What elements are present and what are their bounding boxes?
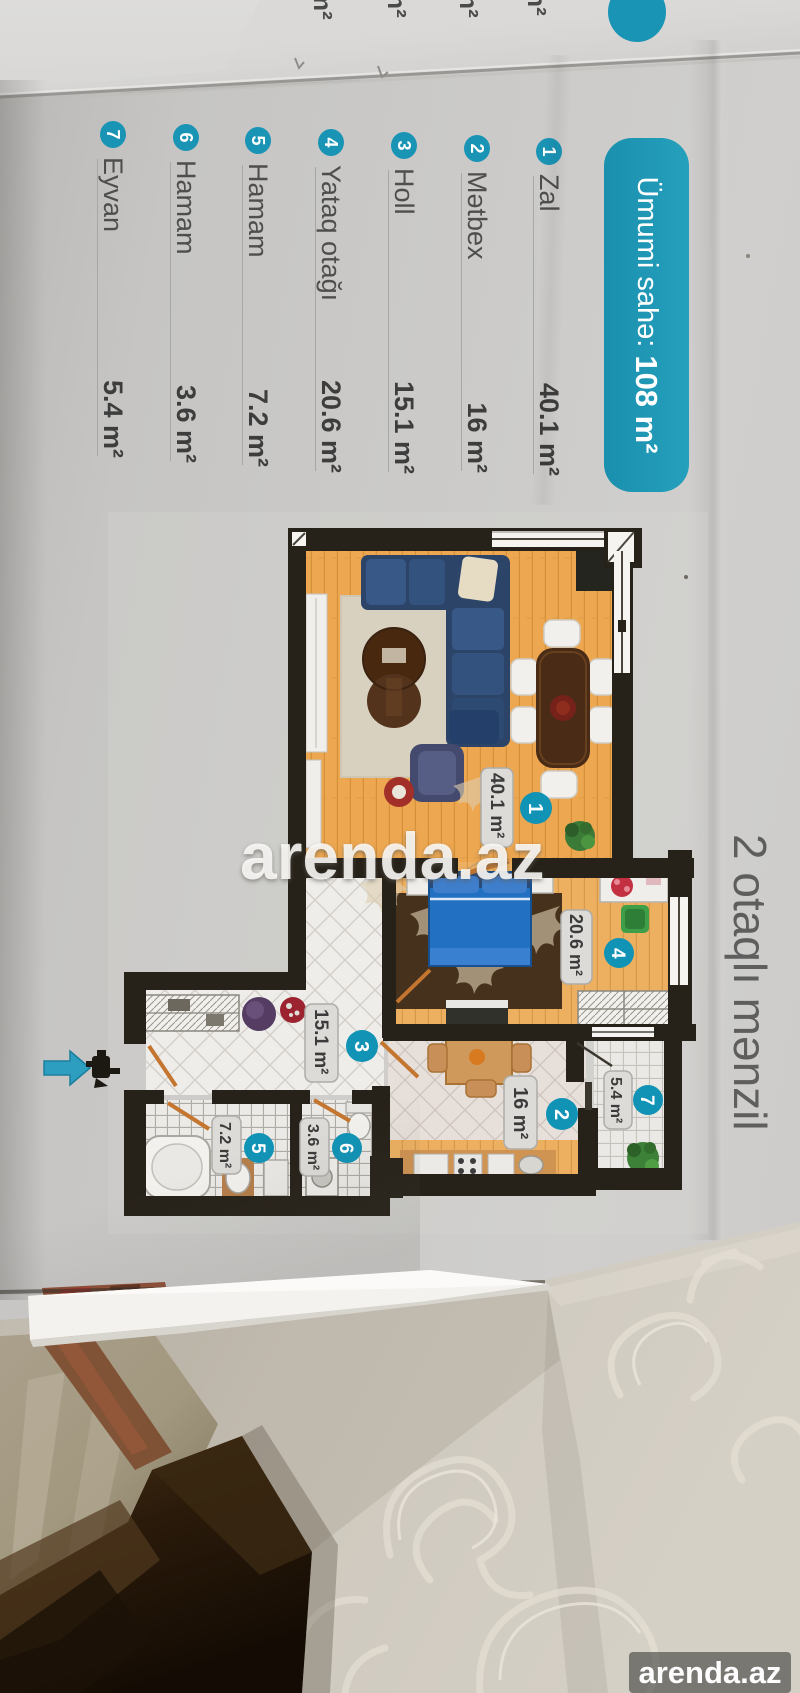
svg-text:5.4 m²: 5.4 m² xyxy=(607,1077,624,1123)
svg-text:2: 2 xyxy=(550,1109,572,1120)
svg-text:4: 4 xyxy=(607,948,628,959)
svg-text:3: 3 xyxy=(350,1041,372,1052)
svg-text:1: 1 xyxy=(524,803,546,814)
svg-text:16 m²: 16 m² xyxy=(509,1087,531,1140)
svg-text:20.6 m²: 20.6 m² xyxy=(566,914,586,976)
svg-text:15.1 m²: 15.1 m² xyxy=(310,1009,331,1074)
svg-text:7: 7 xyxy=(636,1095,657,1106)
